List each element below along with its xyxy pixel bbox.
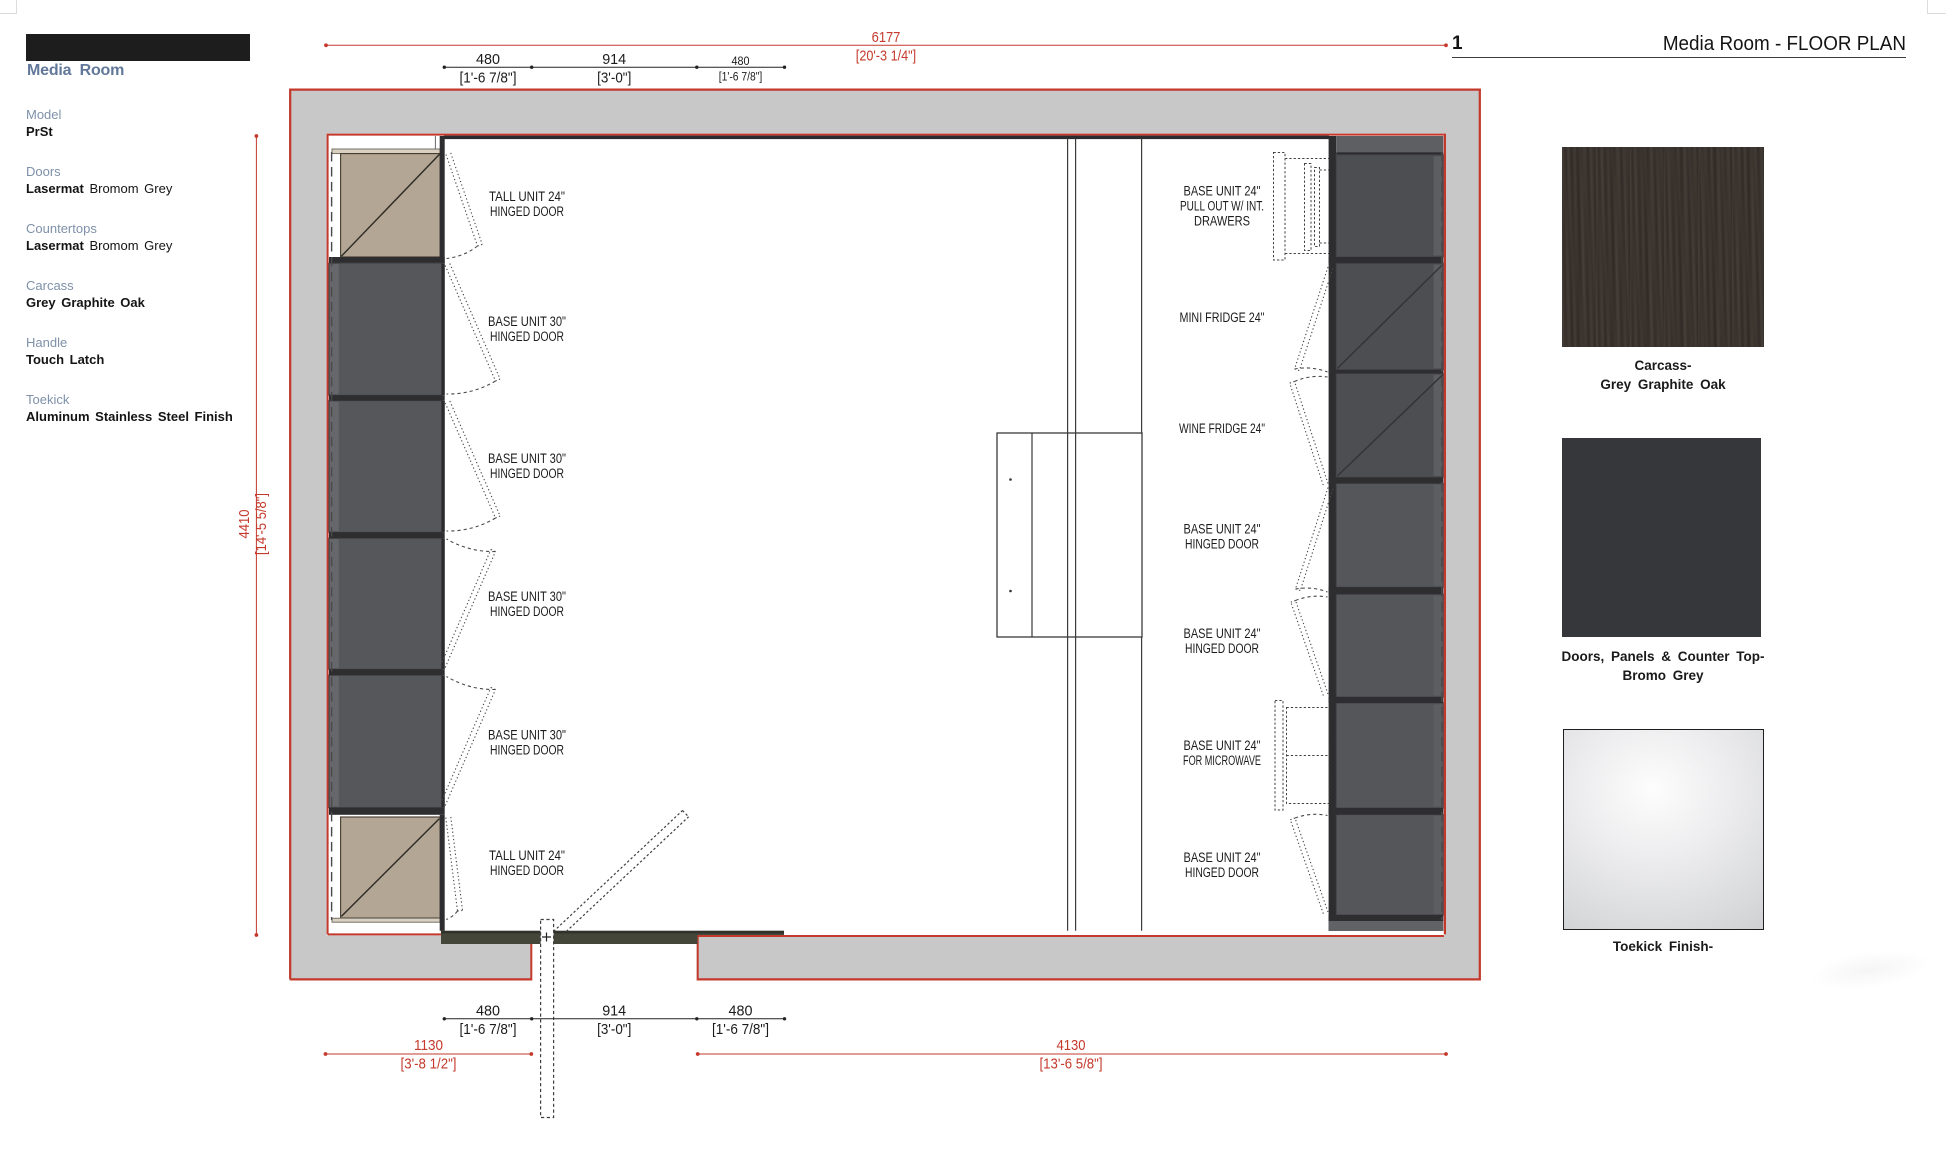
svg-text:914: 914: [602, 51, 626, 68]
svg-text:914: 914: [602, 1003, 626, 1020]
svg-text:HINGED DOOR: HINGED DOOR: [490, 863, 564, 878]
svg-text:[13'-6 5/8"]: [13'-6 5/8"]: [1040, 1056, 1103, 1073]
svg-text:480: 480: [732, 54, 750, 68]
svg-text:480: 480: [476, 51, 500, 68]
svg-text:TALL UNIT 24": TALL UNIT 24": [489, 189, 565, 204]
svg-text:[20'-3 1/4"]: [20'-3 1/4"]: [856, 48, 916, 65]
svg-text:6177: 6177: [872, 29, 901, 46]
svg-text:[14'-5 5/8"]: [14'-5 5/8"]: [253, 493, 270, 555]
svg-text:[3'-8 1/2"]: [3'-8 1/2"]: [401, 1056, 457, 1073]
svg-text:4130: 4130: [1057, 1037, 1086, 1054]
svg-text:BASE UNIT 24": BASE UNIT 24": [1184, 626, 1261, 641]
svg-text:HINGED DOOR: HINGED DOOR: [1185, 865, 1259, 880]
svg-text:HINGED DOOR: HINGED DOOR: [490, 329, 564, 344]
svg-text:480: 480: [729, 1003, 753, 1020]
svg-text:1130: 1130: [414, 1037, 443, 1054]
svg-text:BASE UNIT 30": BASE UNIT 30": [488, 728, 566, 743]
svg-text:BASE UNIT 24": BASE UNIT 24": [1184, 522, 1261, 537]
svg-text:BASE UNIT 30": BASE UNIT 30": [488, 451, 566, 466]
svg-text:[3'-0"]: [3'-0"]: [597, 70, 631, 87]
svg-text:HINGED DOOR: HINGED DOOR: [490, 466, 564, 481]
svg-text:BASE UNIT 24": BASE UNIT 24": [1184, 850, 1261, 865]
svg-text:PULL OUT W/ INT.: PULL OUT W/ INT.: [1180, 199, 1264, 214]
svg-text:[3'-0"]: [3'-0"]: [597, 1021, 631, 1038]
svg-text:HINGED DOOR: HINGED DOOR: [490, 743, 564, 758]
svg-text:HINGED DOOR: HINGED DOOR: [1185, 641, 1259, 656]
svg-text:480: 480: [476, 1003, 500, 1020]
svg-text:HINGED DOOR: HINGED DOOR: [1185, 537, 1259, 552]
svg-text:WINE FRIDGE 24": WINE FRIDGE 24": [1179, 421, 1265, 436]
svg-text:MINI FRIDGE 24": MINI FRIDGE 24": [1180, 310, 1265, 325]
svg-text:HINGED DOOR: HINGED DOOR: [490, 204, 564, 219]
svg-text:BASE UNIT 24": BASE UNIT 24": [1184, 184, 1261, 199]
svg-text:4410: 4410: [236, 510, 253, 539]
svg-text:DRAWERS: DRAWERS: [1194, 214, 1250, 229]
svg-text:[1'-6 7/8"]: [1'-6 7/8"]: [460, 1021, 517, 1038]
svg-text:BASE UNIT 30": BASE UNIT 30": [488, 589, 566, 604]
svg-text:FOR MICROWAVE: FOR MICROWAVE: [1183, 753, 1261, 768]
svg-text:[1'-6 7/8"]: [1'-6 7/8"]: [712, 1021, 769, 1038]
svg-text:BASE UNIT 24": BASE UNIT 24": [1184, 738, 1261, 753]
svg-text:TALL UNIT 24": TALL UNIT 24": [489, 848, 565, 863]
svg-text:[1'-6 7/8"]: [1'-6 7/8"]: [719, 70, 763, 84]
svg-text:[1'-6 7/8"]: [1'-6 7/8"]: [460, 70, 517, 87]
svg-text:HINGED DOOR: HINGED DOOR: [490, 604, 564, 619]
svg-text:BASE UNIT 30": BASE UNIT 30": [488, 314, 566, 329]
